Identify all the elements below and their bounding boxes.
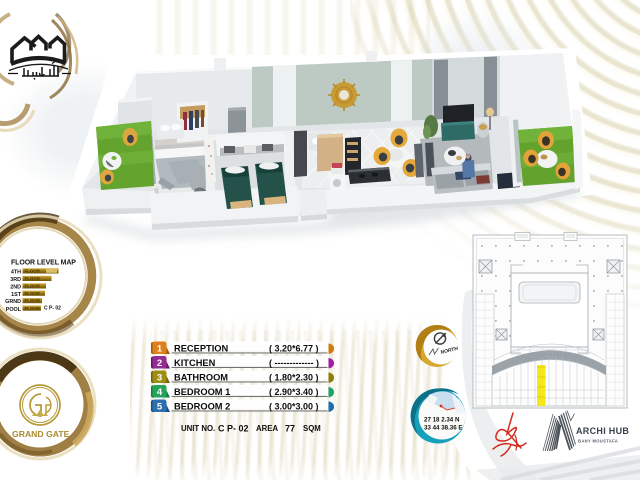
svg-text:( 1.80*2.30 ): ( 1.80*2.30 )	[269, 373, 319, 383]
svg-text:UNIT NO.: UNIT NO.	[181, 424, 215, 433]
svg-text:( ------------- ): ( ------------- )	[269, 358, 319, 368]
svg-text:BEDROOM 1: BEDROOM 1	[174, 387, 230, 397]
svg-text:BATHROOM: BATHROOM	[174, 373, 228, 383]
svg-text:( 3.20*6.77 ): ( 3.20*6.77 )	[269, 344, 319, 354]
svg-text:77: 77	[285, 424, 295, 434]
svg-text:( 2.90*3.40 ): ( 2.90*3.40 )	[269, 387, 319, 397]
svg-text:BANY MOUSTAFA: BANY MOUSTAFA	[578, 439, 618, 444]
svg-text:33 44 38.36 E: 33 44 38.36 E	[424, 425, 463, 432]
svg-text:1: 1	[157, 344, 163, 355]
svg-text:AREA: AREA	[256, 424, 278, 433]
svg-text:KITCHEN: KITCHEN	[174, 358, 216, 368]
svg-text:27 18 2.34 N: 27 18 2.34 N	[424, 417, 460, 424]
svg-text:SQM: SQM	[303, 424, 321, 433]
svg-text:BEDROOM 2: BEDROOM 2	[174, 402, 230, 412]
svg-text:ARCHI HUB: ARCHI HUB	[576, 426, 629, 436]
svg-text:C P- 02: C P- 02	[218, 424, 249, 434]
svg-text:4: 4	[157, 387, 163, 398]
svg-text:2: 2	[157, 358, 162, 369]
svg-text:RECEPTION: RECEPTION	[174, 344, 229, 354]
svg-text:3: 3	[157, 373, 162, 384]
svg-text:( 3.00*3.00 ): ( 3.00*3.00 )	[269, 402, 319, 412]
svg-text:5: 5	[157, 402, 163, 413]
